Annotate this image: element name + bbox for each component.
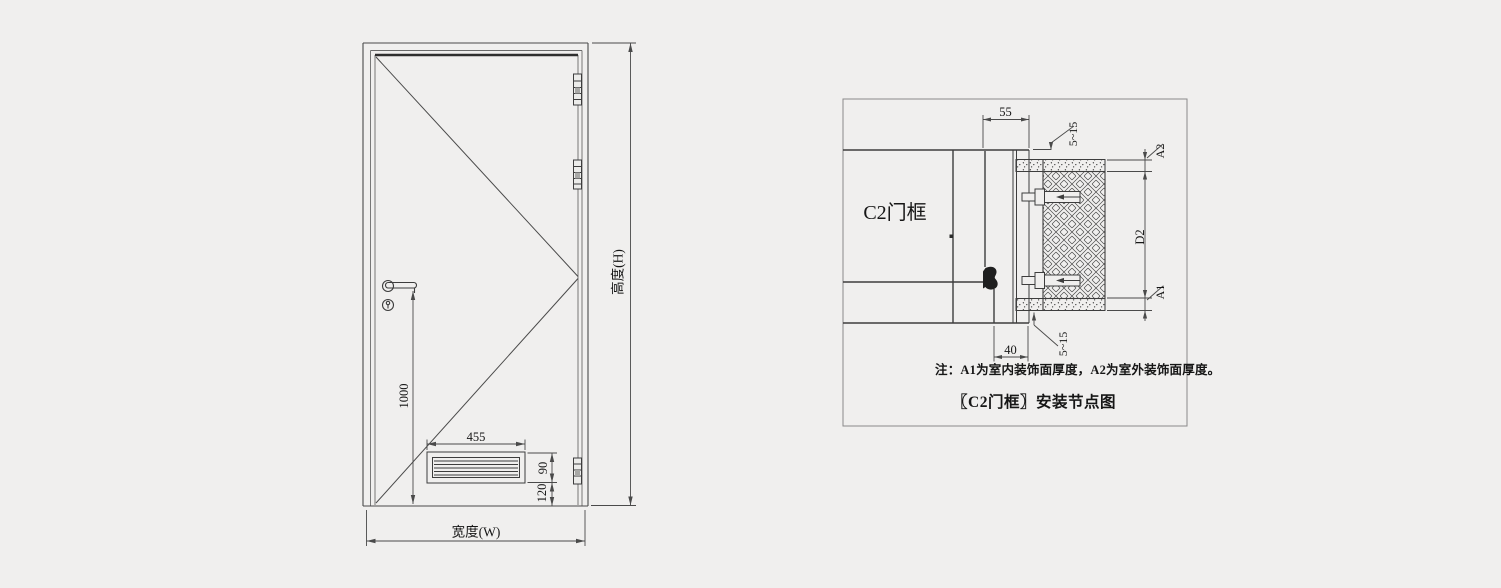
dim-louver-height-label: 90 bbox=[536, 461, 549, 474]
detail-caption: 〖C2门框〗安装节点图 bbox=[952, 395, 1116, 411]
cad-drawing-canvas: 高度(H) 宽度(W) 1000 455 90 120 C2门框 55 5~15… bbox=[0, 0, 1501, 588]
dim-handle-height-label: 1000 bbox=[398, 384, 411, 409]
dim-face-label: 40 bbox=[1004, 343, 1017, 356]
dim-frame-depth-line bbox=[983, 115, 1029, 148]
detail-note: 注：A1为室内装饰面厚度，A2为室外装饰面厚度。 bbox=[935, 364, 1220, 377]
detail-wall-section bbox=[1043, 160, 1105, 311]
detail-frame-profile bbox=[843, 150, 1029, 323]
dim-outer-finish-label: A2 bbox=[1154, 143, 1166, 158]
dim-gap-bottom-label: 5~15 bbox=[1057, 332, 1069, 357]
drawing-linework bbox=[0, 0, 1501, 588]
gap-leader-bottom bbox=[1032, 313, 1058, 347]
dim-louver-offset-label: 120 bbox=[536, 483, 549, 502]
frame-section-label: C2门框 bbox=[863, 203, 926, 223]
door-handle bbox=[383, 281, 417, 311]
frame-seal-gasket bbox=[983, 267, 998, 290]
dim-handle-height-line bbox=[411, 291, 415, 504]
door-louver bbox=[427, 452, 525, 483]
dim-wall-thickness-label: D2 bbox=[1133, 229, 1146, 244]
dim-gap-top-label: 5~15 bbox=[1067, 122, 1079, 147]
dim-height-label: 高度(H) bbox=[611, 249, 625, 295]
dim-louver-width-label: 455 bbox=[467, 430, 486, 443]
dim-width-label: 宽度(W) bbox=[452, 525, 501, 539]
dim-frame-depth-label: 55 bbox=[999, 106, 1012, 119]
dim-inner-finish-label: A1 bbox=[1154, 285, 1166, 300]
